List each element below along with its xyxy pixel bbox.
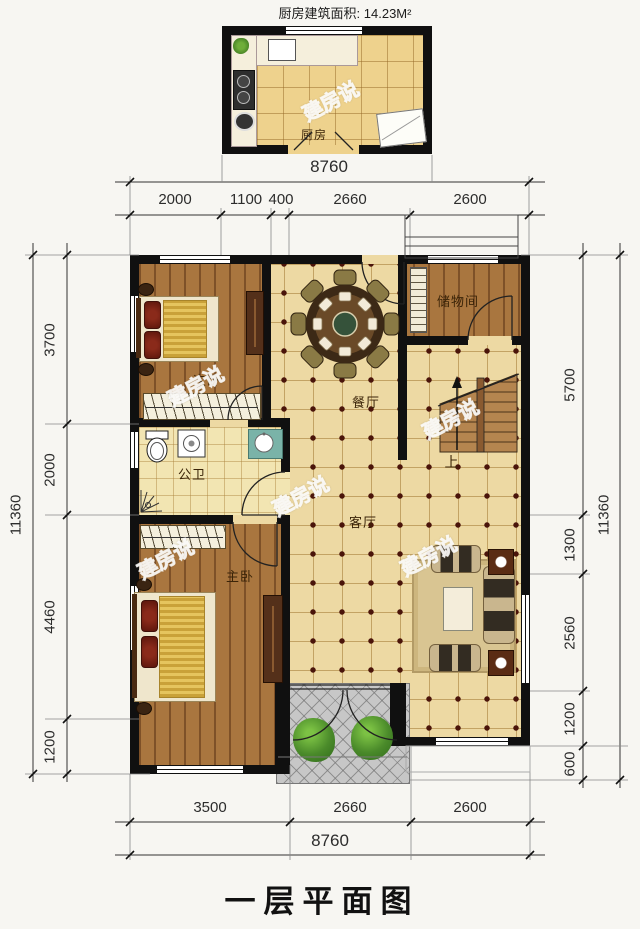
- coffee-table: [443, 587, 473, 631]
- bed-headboard: [136, 298, 141, 358]
- pillow: [141, 600, 158, 632]
- kitchen-door-opening: [288, 145, 359, 154]
- stove-burner: [237, 91, 250, 104]
- dim-left-total: 11360: [8, 495, 25, 536]
- dim-left-3: 4460: [42, 600, 59, 633]
- stairs-up-label: 上: [445, 452, 460, 472]
- kitchen-room-label: 厨房: [301, 126, 327, 143]
- wardrobe-master: [140, 525, 226, 549]
- porch-stub-left: [275, 683, 290, 765]
- dim-bottom-1: 3500: [193, 799, 226, 816]
- bed-blanket: [163, 300, 207, 358]
- dim-left-4: 1200: [42, 730, 59, 763]
- window-bedroom2-top: [160, 255, 230, 264]
- stove-burner: [237, 75, 250, 88]
- side-table-lamp: [488, 650, 514, 676]
- bush: [293, 718, 335, 762]
- room-label-bathroom: 公卫: [178, 464, 206, 483]
- kitchen-sink: [268, 39, 296, 61]
- wardrobe-bedroom2: [143, 393, 261, 420]
- room-label-dining: 餐厅: [352, 392, 380, 411]
- dim-right-3: 2560: [562, 616, 579, 649]
- dim-top-3: 400: [268, 191, 293, 208]
- dim-bottom-total: 8760: [311, 831, 349, 851]
- kitchen-wall-left: [222, 26, 231, 154]
- tv-bench-master: [263, 595, 283, 683]
- kitchen-basin: [234, 112, 255, 131]
- bed-blanket: [159, 596, 205, 698]
- dim-top-2: 1100: [230, 191, 262, 208]
- dim-top-1: 2000: [158, 191, 191, 208]
- pillow: [144, 301, 161, 329]
- window-storage-top: [428, 255, 498, 264]
- master-door-opening: [233, 515, 277, 524]
- nightstand: [136, 702, 152, 715]
- kitchen-window: [286, 26, 362, 35]
- dim-right-1: 5700: [562, 368, 579, 401]
- dim-left-1: 3700: [42, 323, 59, 356]
- vanity-counter: [248, 429, 283, 459]
- dim-top-4: 2660: [333, 191, 366, 208]
- floor-plan-page: 厨房建筑面积: 14.23M² 厨房 8760: [0, 0, 640, 929]
- window-living-right: [521, 595, 530, 683]
- nightstand: [138, 363, 154, 376]
- sofa-top: [431, 545, 481, 573]
- window-bath-left: [130, 432, 139, 468]
- wall-storage-left: [398, 255, 407, 460]
- sofa-right: [483, 566, 515, 644]
- dim-bottom-3: 2600: [453, 799, 486, 816]
- porch-stub-right: [390, 683, 406, 737]
- dresser-bedroom2: [246, 291, 264, 355]
- room-label-storage: 储物间: [437, 291, 479, 310]
- storage-shelf: [410, 267, 427, 333]
- kitchen-fridge: [376, 108, 427, 147]
- pillow: [144, 331, 161, 359]
- room-label-master-bedroom: 主卧: [226, 566, 254, 585]
- dim-right-5: 600: [562, 751, 579, 776]
- side-table-lamp: [488, 549, 514, 575]
- nightstand: [138, 283, 154, 296]
- bed-headboard: [132, 594, 137, 698]
- dim-right-total: 11360: [596, 495, 613, 536]
- sofa-bottom: [429, 644, 481, 672]
- kitchen-width-dim: 8760: [310, 157, 348, 177]
- dim-bottom-2: 2660: [333, 799, 366, 816]
- window-master-bottom: [157, 765, 243, 774]
- window-living-bottom: [436, 737, 508, 746]
- dim-right-2: 1300: [562, 528, 579, 561]
- dim-right-4: 1200: [562, 702, 579, 735]
- storage-door-opening: [468, 336, 512, 345]
- page-title: 一层平面图: [225, 876, 420, 921]
- nightstand: [136, 578, 152, 591]
- dim-left-2: 2000: [42, 453, 59, 486]
- kitchen-area-label: 厨房建筑面积: 14.23M²: [279, 3, 412, 22]
- dim-top-5: 2600: [453, 191, 486, 208]
- pillow: [141, 636, 158, 668]
- room-label-secondary-bedroom: 次卧: [193, 370, 221, 389]
- room-label-living: 客厅: [349, 512, 377, 531]
